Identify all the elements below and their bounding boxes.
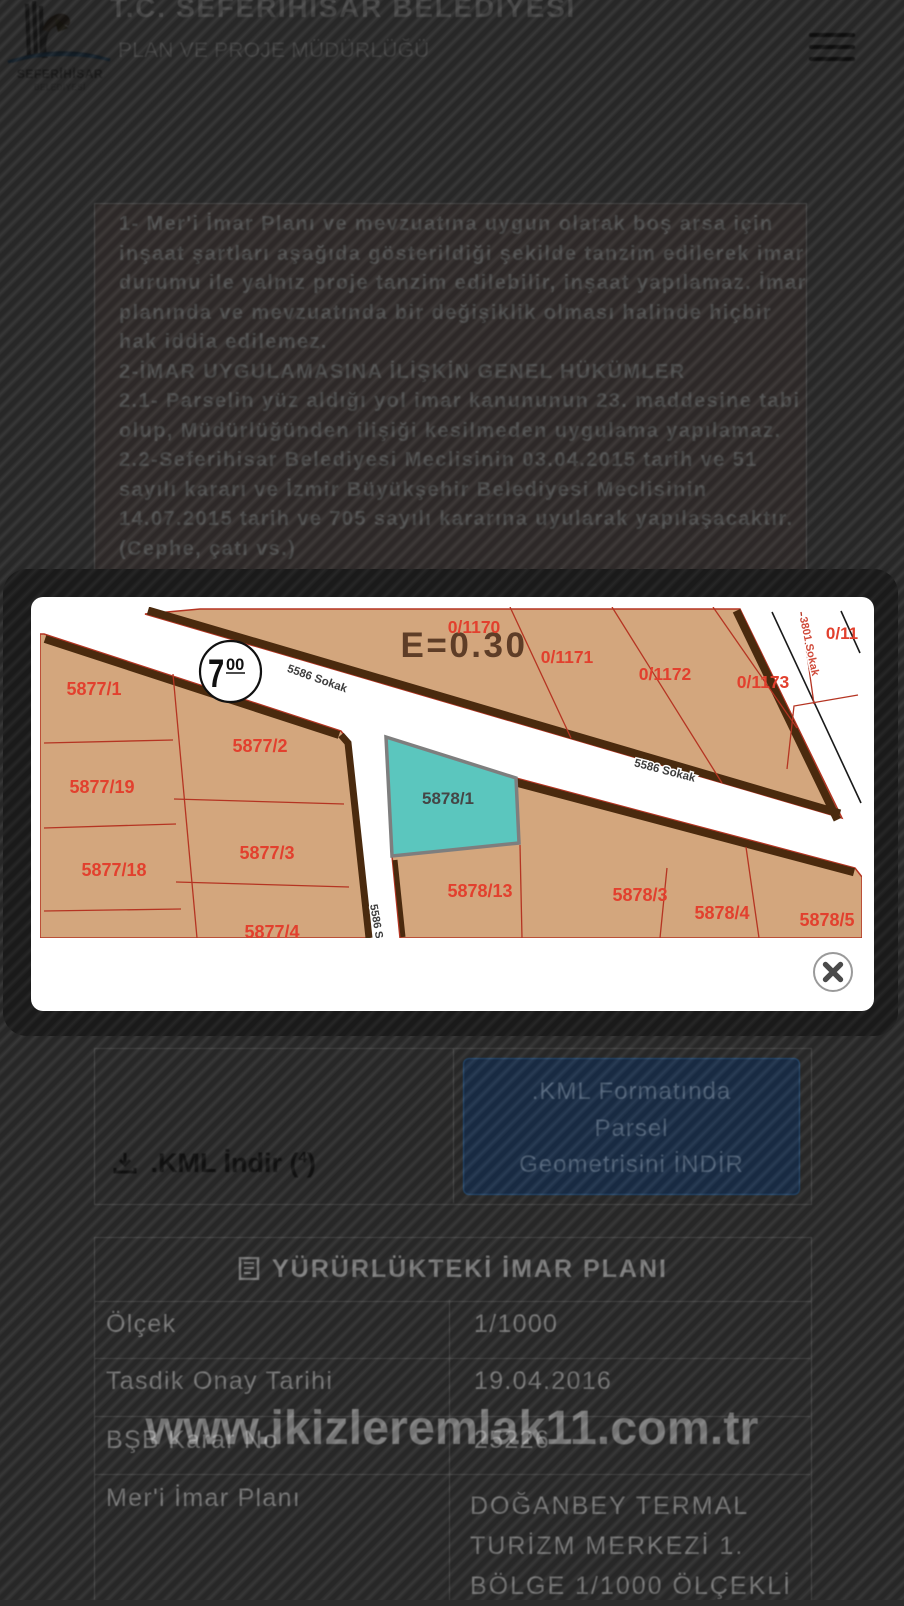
- svg-text:5878/4: 5878/4: [694, 903, 749, 923]
- svg-text:5877/2: 5877/2: [232, 736, 287, 756]
- svg-text:00: 00: [226, 656, 244, 674]
- svg-text:5878/5: 5878/5: [799, 910, 854, 930]
- svg-text:5877/1: 5877/1: [66, 679, 121, 699]
- svg-text:0/1171: 0/1171: [541, 647, 594, 667]
- svg-text:5878/1: 5878/1: [422, 789, 474, 808]
- svg-text:5877/18: 5877/18: [81, 860, 146, 880]
- svg-text:0/1173: 0/1173: [737, 672, 790, 692]
- svg-text:5877/4: 5877/4: [244, 922, 299, 938]
- svg-text:5877/3: 5877/3: [239, 843, 294, 863]
- svg-text:0/1172: 0/1172: [639, 664, 692, 684]
- svg-text:5878/13: 5878/13: [447, 881, 512, 901]
- svg-text:0/1170: 0/1170: [448, 617, 501, 637]
- svg-text:0/11: 0/11: [826, 624, 858, 643]
- svg-text:7: 7: [208, 652, 224, 697]
- svg-text:5877/19: 5877/19: [69, 777, 134, 797]
- svg-text:5878/3: 5878/3: [612, 885, 667, 905]
